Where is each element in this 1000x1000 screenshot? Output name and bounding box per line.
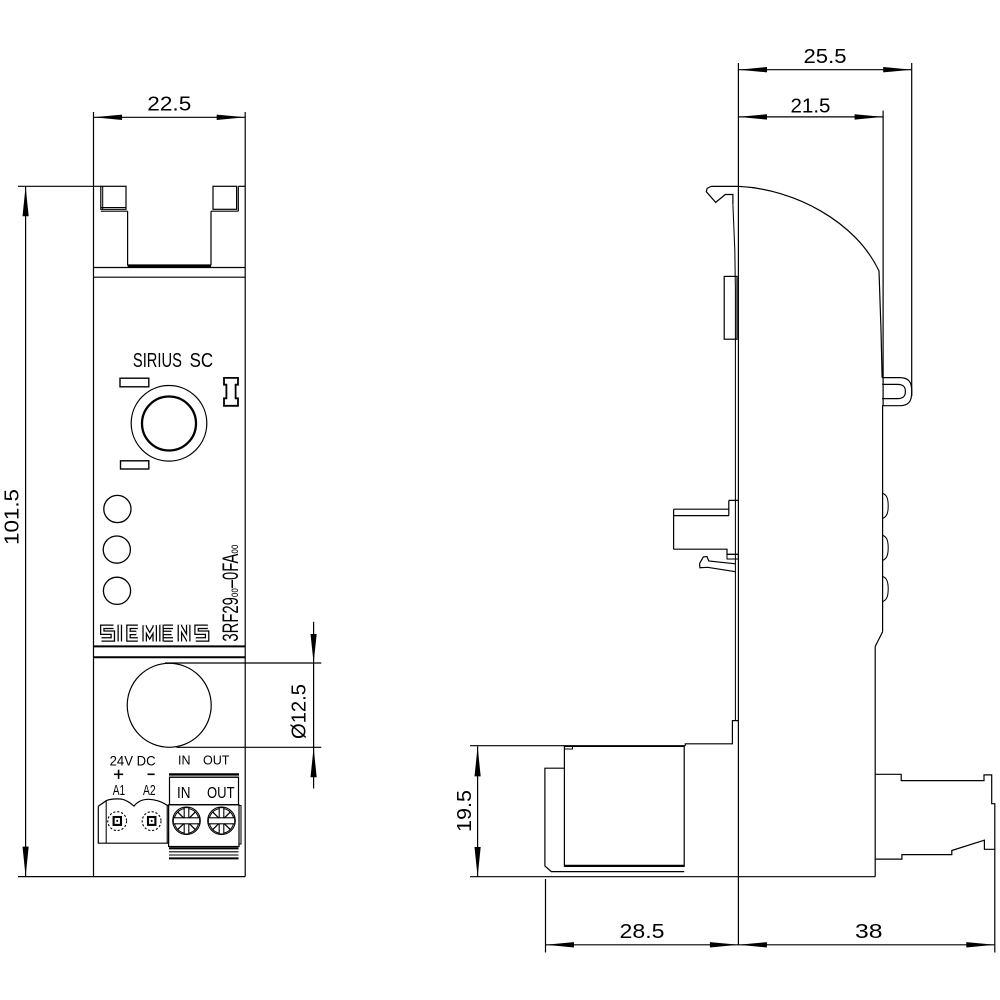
svg-text:IN: IN [177,785,191,802]
svg-text:OUT: OUT [203,752,230,767]
svg-text:24V DC: 24V DC [110,752,156,768]
svg-text:IN: IN [178,752,191,767]
svg-text:A2: A2 [143,783,156,799]
svg-text:38: 38 [855,921,883,943]
svg-text:101.5: 101.5 [2,489,24,545]
svg-text:21.5: 21.5 [791,95,831,117]
svg-text:SIRIUS: SIRIUS [133,350,182,372]
svg-text:22.5: 22.5 [147,93,191,115]
svg-text:SC: SC [190,350,214,372]
svg-text:28.5: 28.5 [620,921,665,943]
svg-text:OUT: OUT [207,785,235,802]
svg-text:19.5: 19.5 [454,790,476,832]
svg-text:A1: A1 [113,783,125,799]
svg-text:Ø12.5: Ø12.5 [289,684,311,739]
svg-text:25.5: 25.5 [804,46,847,68]
